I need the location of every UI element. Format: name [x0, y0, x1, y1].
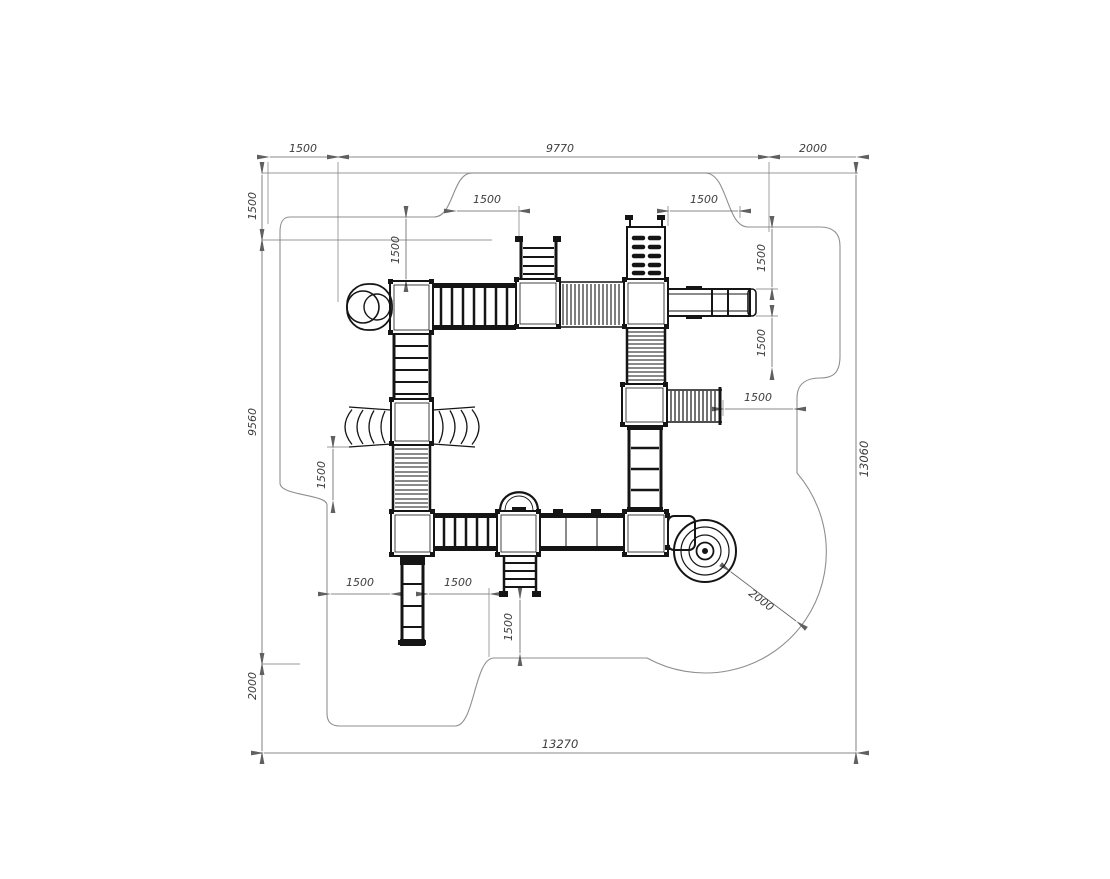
label-i4: 1500 — [755, 244, 768, 272]
stairs-right-upper — [627, 328, 665, 384]
slide-right — [668, 286, 756, 319]
tower-top-left — [390, 281, 433, 334]
label-top-1500: 1500 — [289, 142, 317, 155]
label-top-9770: 9770 — [546, 142, 574, 155]
rung-bridge-top — [433, 283, 516, 330]
label-spiral-radius: 2000 — [746, 587, 776, 614]
tube-slide-exit — [347, 284, 392, 330]
label-right-13060: 13060 — [857, 441, 871, 478]
label-i2: 1500 — [473, 193, 501, 206]
tower-mid-right — [622, 384, 667, 426]
ladder-left — [394, 334, 430, 399]
tower-bottom-left — [391, 511, 434, 556]
dimension-labels: 1500 9770 2000 1500 9560 2000 13060 1327… — [246, 142, 871, 751]
tower-bottom-mid — [497, 511, 540, 556]
spiral-slide — [665, 513, 736, 582]
label-left-9560: 9560 — [246, 408, 259, 436]
label-i10: 1500 — [502, 613, 515, 641]
label-i7: 1500 — [315, 461, 328, 489]
label-i9: 1500 — [444, 576, 472, 589]
dome-arch — [500, 492, 538, 511]
playground-plan-svg: 1500 9770 2000 1500 9560 2000 13060 1327… — [0, 0, 1110, 879]
label-i1: 1500 — [389, 236, 402, 264]
climbing-wall — [625, 215, 665, 279]
label-i6: 1500 — [744, 391, 772, 404]
label-i3: 1500 — [690, 193, 718, 206]
ladder-top — [515, 236, 561, 279]
plan-drawing-sheet: 1500 9770 2000 1500 9560 2000 13060 1327… — [0, 0, 1110, 879]
rung-bridge-bottom — [434, 513, 497, 551]
tower-mid-left — [391, 399, 433, 445]
label-bottom-13270: 13270 — [542, 737, 579, 751]
towers — [390, 279, 668, 556]
fan-slide-left — [345, 407, 391, 447]
label-left-2000: 2000 — [246, 672, 259, 700]
tower-top-mid — [516, 279, 560, 328]
tower-top-right — [624, 279, 668, 328]
plain-bridge-bottom — [540, 509, 624, 551]
ribbed-ramp-left — [393, 445, 430, 511]
tower-bottom-right — [624, 511, 668, 556]
ladder-bottom-left — [400, 556, 425, 646]
fan-slide-right — [433, 407, 479, 447]
label-i8: 1500 — [346, 576, 374, 589]
equipment-layer — [345, 215, 756, 646]
climbing-holds — [634, 238, 659, 273]
tunnel-bridge-top — [560, 282, 624, 327]
net-climber — [667, 387, 722, 425]
ladder-right — [627, 426, 663, 511]
label-left-1500: 1500 — [246, 192, 259, 220]
label-i5: 1500 — [755, 329, 768, 357]
label-top-2000: 2000 — [799, 142, 827, 155]
stairs-bottom-mid — [499, 556, 541, 597]
